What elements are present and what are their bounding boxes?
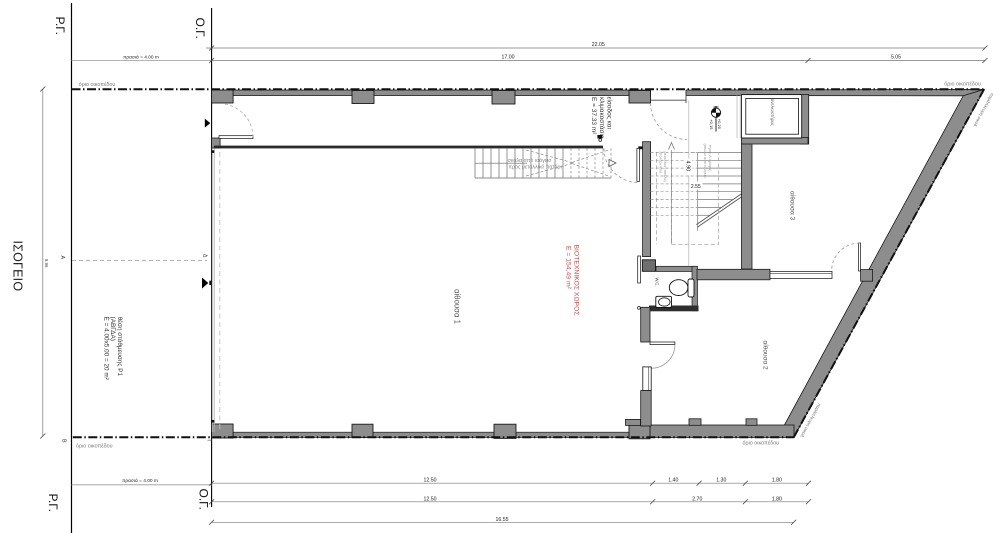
- svg-text:1.80: 1.80: [772, 478, 782, 484]
- svg-text:1.80: 1.80: [772, 496, 782, 502]
- svg-text:2.55: 2.55: [691, 184, 701, 190]
- svg-text:Ο.Γ.: Ο.Γ.: [193, 18, 207, 39]
- svg-text:ΒΙΟΤΕΧΝΙΚΟΣ ΧΩΡΟΣ: ΒΙΟΤΕΧΝΙΚΟΣ ΧΩΡΟΣ: [573, 245, 580, 316]
- svg-text:πρασιά = 4.00 m: πρασιά = 4.00 m: [123, 54, 159, 61]
- svg-text:αίθουσα 3: αίθουσα 3: [788, 191, 796, 221]
- svg-text:5.05: 5.05: [891, 54, 901, 60]
- svg-text:(σκάλα από ισόγειο: (σκάλα από ισόγειο: [703, 144, 708, 179]
- svg-text:1.30: 1.30: [716, 478, 726, 484]
- svg-text:Α: Α: [59, 256, 65, 260]
- svg-text:όριο οικοπέδου: όριο οικοπέδου: [944, 81, 981, 88]
- svg-text:22.05: 22.05: [592, 42, 605, 48]
- svg-text:Β: Β: [61, 439, 67, 443]
- svg-text:ΙΣΟΓΕΙΟ: ΙΣΟΓΕΙΟ: [11, 241, 25, 292]
- svg-text:12.50: 12.50: [424, 496, 437, 502]
- svg-text:1.40: 1.40: [668, 478, 678, 484]
- svg-text:Ρ.Γ.: Ρ.Γ.: [53, 17, 67, 35]
- svg-text:αίθουσα 2: αίθουσα 2: [761, 341, 769, 371]
- svg-text:9.96: 9.96: [44, 259, 49, 268]
- svg-text:όριο οικοπέδου: όριο οικοπέδου: [76, 443, 113, 450]
- svg-text:πρασιά = 4.00 m: πρασιά = 4.00 m: [122, 477, 158, 484]
- svg-text:Ε = 4.00x5.00 = 20 m²: Ε = 4.00x5.00 = 20 m²: [102, 317, 109, 380]
- svg-text:+0,20: +0,20: [717, 119, 722, 130]
- svg-text:προς μεταλλικό πατάρι: προς μεταλλικό πατάρι: [508, 163, 562, 170]
- svg-text:κλιμακοστάσιο: κλιμακοστάσιο: [598, 97, 606, 139]
- svg-text:Γ: Γ: [206, 440, 212, 443]
- svg-text:μεταλλική σκάλα): μεταλλική σκάλα): [663, 152, 668, 183]
- svg-text:12.50: 12.50: [424, 478, 437, 484]
- svg-text:αίθουσα 1: αίθουσα 1: [453, 289, 462, 324]
- svg-text:σκάλα από ισόγειο: σκάλα από ισόγειο: [508, 157, 552, 164]
- svg-text:4.90: 4.90: [685, 161, 691, 172]
- svg-text:Ε = 37.33 m²: Ε = 37.33 m²: [590, 97, 597, 135]
- svg-text:17.00: 17.00: [502, 54, 515, 60]
- svg-text:+0,15: +0,15: [709, 119, 714, 130]
- svg-text:(πατάρι από: (πατάρι από: [659, 152, 664, 175]
- svg-text:όριο οικοπέδου: όριο οικοπέδου: [79, 81, 116, 88]
- svg-text:2.70: 2.70: [692, 496, 702, 502]
- svg-text:προς Α όροφο): προς Α όροφο): [708, 145, 713, 172]
- svg-text:W.C.: W.C.: [655, 278, 660, 287]
- svg-text:είσοδος και: είσοδος και: [606, 97, 614, 130]
- svg-text:Ρ.Γ.: Ρ.Γ.: [46, 494, 60, 512]
- svg-text:ανελκυστήρας: ανελκυστήρας: [770, 99, 775, 126]
- svg-text:όριο οικοπέδου: όριο οικοπέδου: [743, 440, 780, 447]
- svg-text:Ε = 154,49 m²: Ε = 154,49 m²: [565, 246, 572, 290]
- svg-text:16.55: 16.55: [496, 517, 509, 523]
- svg-text:Ο.Γ.: Ο.Γ.: [197, 489, 211, 510]
- svg-text:θέση στάθμευσης Ρ1: θέση στάθμευσης Ρ1: [116, 317, 124, 377]
